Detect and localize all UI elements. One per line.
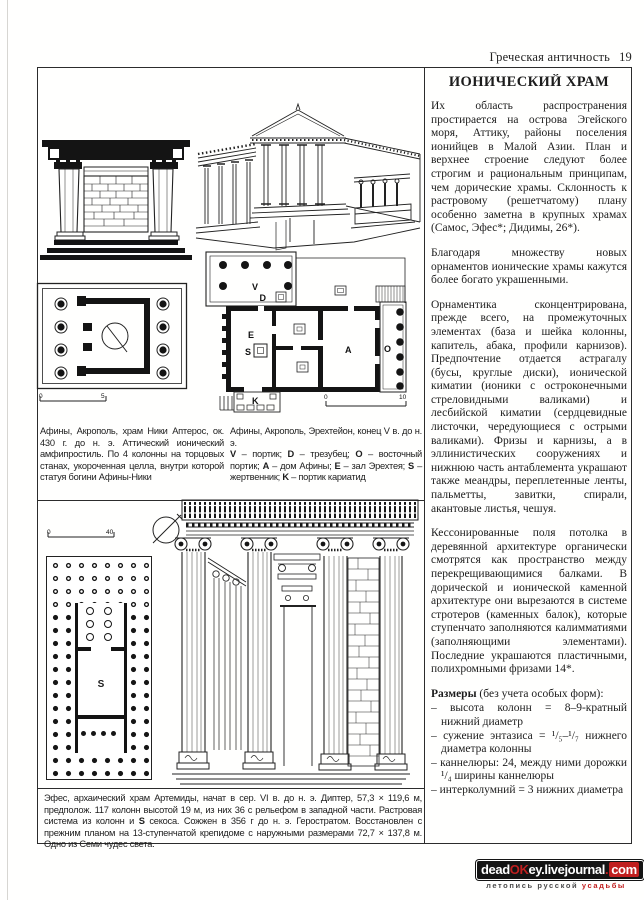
plan-label-v: V xyxy=(252,282,258,292)
erechtheion-plan-drawing: V D xyxy=(198,248,424,421)
article-title: ИОНИЧЕСКИЙ ХРАМ xyxy=(431,74,627,91)
svg-text:0: 0 xyxy=(324,394,328,401)
sizes-item: – каннелюры: 24, между ними дорожки ¹/₄ … xyxy=(431,757,627,784)
sizes-list: – высота колонн = 8–9-кратный нижний диа… xyxy=(431,702,627,797)
running-head: Греческая античность19 xyxy=(37,50,632,65)
paragraph: Благодаря множеству новых орнаментов ион… xyxy=(431,247,627,288)
rule-right xyxy=(631,67,632,844)
svg-text:10: 10 xyxy=(399,394,407,401)
watermark-subtitle: летопись русской усадьбы xyxy=(476,881,636,890)
plan-label-k: K xyxy=(252,396,259,406)
artemis-scale-bar: 0 40 xyxy=(46,526,118,545)
nike-temple-elevation-drawing xyxy=(40,112,192,273)
svg-text:40: 40 xyxy=(106,529,114,536)
nike-caption: Афины, Акрополь, храм Ники Аптерос, ок. … xyxy=(40,426,224,484)
rule-column-divider xyxy=(424,67,425,844)
paragraph: Их область распространения простирается … xyxy=(431,100,627,236)
nike-temple-plan-drawing xyxy=(36,282,188,395)
plan-label-s: S xyxy=(245,347,251,357)
page-number: 19 xyxy=(610,50,632,64)
svg-text:0: 0 xyxy=(47,529,51,536)
artemis-temple-plan-drawing: S xyxy=(46,556,152,780)
text-column: ИОНИЧЕСКИЙ ХРАМ Их область распространен… xyxy=(431,74,627,840)
sizes-item: – высота колонн = 8–9-кратный нижний диа… xyxy=(431,702,627,729)
artemis-caption: Эфес, архаический храм Артемиды, начат в… xyxy=(44,793,422,851)
artemis-columns-perspective-drawing xyxy=(156,498,422,791)
svg-text:5: 5 xyxy=(101,393,105,400)
sizes-block: Размеры (без учета особых форм): – высот… xyxy=(431,688,627,798)
sizes-heading: Размеры (без учета особых форм): xyxy=(431,688,627,702)
plan-open-column-dots xyxy=(49,559,149,609)
paragraph: Кессонированные поля потолка в деревянно… xyxy=(431,527,627,677)
rule-left xyxy=(37,67,38,844)
book-page: Греческая античность19 ИОНИЧЕСКИЙ ХРАМ И… xyxy=(0,0,644,900)
svg-text:0: 0 xyxy=(39,393,43,400)
paragraph: Орнаментика сконцентрирована, прежде все… xyxy=(431,299,627,517)
plan-cella: S xyxy=(75,603,127,753)
plan-label-s: S xyxy=(78,679,124,690)
erechtheion-scale-bar xyxy=(326,401,406,406)
erechtheion-caption: Афины, Акрополь, Эрехтейон, конец V в. д… xyxy=(230,426,422,484)
rule-top xyxy=(37,67,632,68)
plan-label-e: E xyxy=(248,330,254,340)
sizes-item: – сужение энтазиса = ¹/₅–¹/₇ нижнего диа… xyxy=(431,730,627,757)
plan-label-o: O xyxy=(384,344,391,354)
running-head-title: Греческая античность xyxy=(490,50,611,64)
plan-label-a: A xyxy=(345,345,352,355)
plan-label-d: D xyxy=(260,293,267,303)
watermark-livejournal[interactable]: deadOKey.livejournal.com летопись русско… xyxy=(476,860,636,890)
sizes-item: – интерколумний = 3 нижних диаметра xyxy=(431,784,627,798)
scan-edge-line xyxy=(7,0,8,900)
nike-scale-bar: 0 5 xyxy=(38,390,110,409)
watermark-badge[interactable]: deadOKey.livejournal.com xyxy=(476,860,644,880)
